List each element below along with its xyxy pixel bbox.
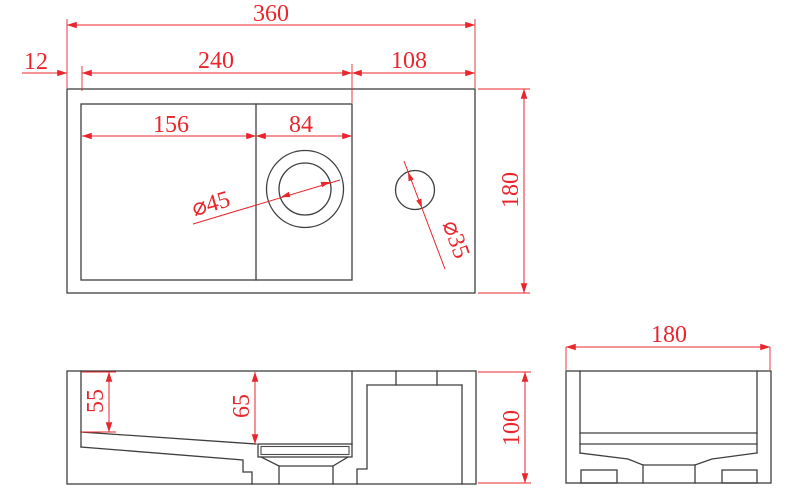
side-mount-slot-right [722,470,757,483]
arrow-drain-right [321,182,330,187]
drain-taper [261,457,348,466]
arrow-faucet-bottom [416,199,422,208]
arrow-faucet-top [408,172,414,181]
drain-recess-circle [267,151,344,228]
dim-deck-width: 108 [391,48,427,74]
mount-cavity-left-wall [357,385,367,484]
dim-left-wall-offset: 12 [24,49,48,75]
drain-hole-circle [279,163,331,215]
side-mount-slot-left [581,470,617,483]
side-view-outer-outline [566,371,771,483]
front-section-view [67,371,476,484]
dimensions: 360 12 240 108 156 84 180 ⌀45 ⌀35 55 65 … [22,1,770,483]
dim-drain-diameter: ⌀45 [189,186,233,222]
dim-bowl-depth-drain: 65 [229,394,255,418]
drawing-canvas: 360 12 240 108 156 84 180 ⌀45 ⌀35 55 65 … [0,0,800,498]
top-view [67,89,475,293]
dim-bowl-left: 156 [153,112,189,138]
front-view-outer-outline [67,371,476,484]
dim-bowl-right: 84 [289,112,313,138]
technical-drawing: 360 12 240 108 156 84 180 ⌀45 ⌀35 55 65 … [0,0,800,498]
side-section-view [566,371,771,483]
dim-overall-depth: 180 [498,172,524,208]
top-view-outer-outline [67,89,475,293]
dim-bowl-depth-left: 55 [83,389,109,413]
side-drain-funnel [580,453,757,465]
dim-basin-width: 240 [198,48,234,74]
dim-overall-width: 360 [253,1,289,27]
bowl-floor-slope [81,432,256,444]
dim-side-depth: 180 [651,322,687,348]
dim-faucet-diameter: ⌀35 [437,217,475,262]
arrow-drain-left [281,192,290,197]
drain-flange-inner [261,447,349,455]
dim-overall-height: 100 [499,410,525,446]
bowl-underside-line [81,447,252,484]
